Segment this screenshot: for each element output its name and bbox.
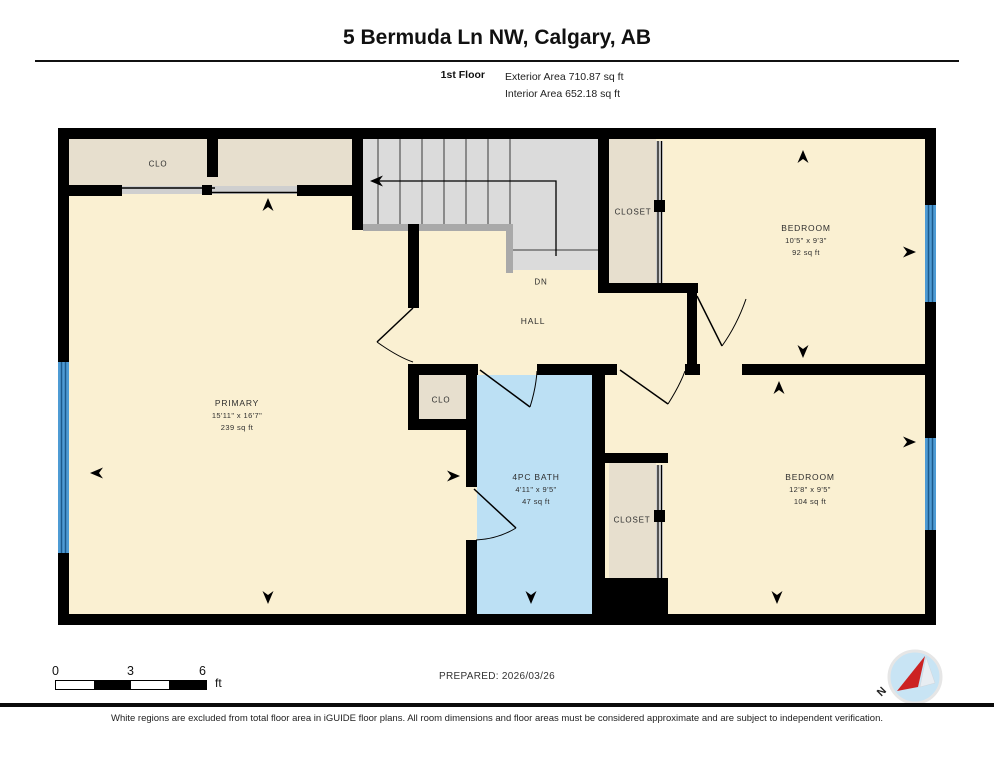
room-name: 4PC BATH: [512, 471, 559, 484]
room-fills: [69, 139, 925, 614]
closet-bottom-label: CLOSET: [614, 516, 651, 525]
room-name: BEDROOM: [785, 471, 835, 484]
window-bedroom-bottom-right: [925, 438, 936, 530]
footer-divider: [0, 703, 994, 707]
window-primary-left: [58, 362, 69, 553]
wall-outer-top: [58, 128, 936, 139]
wall-outer-right: [925, 128, 936, 625]
hall-label: HALL: [521, 316, 545, 326]
closet-top-left-label: CLO: [149, 160, 168, 169]
room-name: BEDROOM: [781, 222, 831, 235]
room-dims: 4'11" x 9'5": [512, 484, 559, 496]
prepared-date: PREPARED: 2026/03/26: [0, 671, 994, 682]
room-dims: 12'8" x 9'5": [785, 484, 835, 496]
floorplan-svg: [0, 0, 994, 768]
bath-label: 4PC BATH 4'11" x 9'5" 47 sq ft: [512, 471, 559, 507]
room-area: 92 sq ft: [781, 247, 831, 259]
room-dims: 15'11" x 16'7": [212, 410, 262, 422]
sliding-door-closet-top-left: [122, 185, 297, 195]
room-area: 47 sq ft: [512, 496, 559, 508]
floorplan-page: 5 Bermuda Ln NW, Calgary, AB 1st Floor E…: [0, 0, 994, 768]
disclaimer-text: White regions are excluded from total fl…: [0, 713, 994, 724]
window-bedroom-top-right: [925, 205, 936, 302]
stairs-dn-label: DN: [534, 278, 547, 287]
room-name: PRIMARY: [212, 397, 262, 410]
room-dims: 10'5" x 9'3": [781, 235, 831, 247]
primary-label: PRIMARY 15'11" x 16'7" 239 sq ft: [212, 397, 262, 433]
wall-outer-bottom: [58, 614, 936, 625]
room-area: 239 sq ft: [212, 422, 262, 434]
room-area: 104 sq ft: [785, 496, 835, 508]
closet-top-right-label: CLOSET: [615, 208, 652, 217]
closet-mid-label: CLO: [432, 396, 451, 405]
bedroom-top-label: BEDROOM 10'5" x 9'3" 92 sq ft: [781, 222, 831, 258]
bedroom-bottom-label: BEDROOM 12'8" x 9'5" 104 sq ft: [785, 471, 835, 507]
